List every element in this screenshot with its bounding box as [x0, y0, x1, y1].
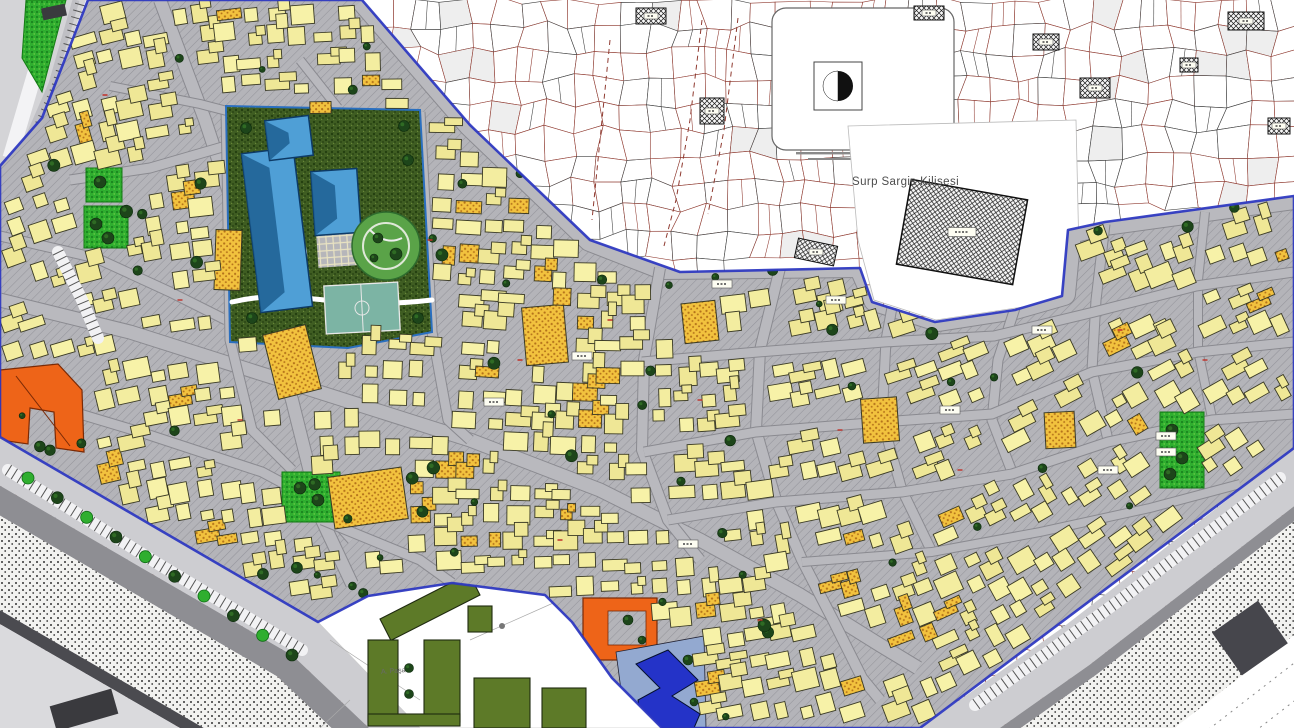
- urban-plan-map: Surp Sargis Kilisesi A. Paşa: [0, 0, 1294, 728]
- church-label: Surp Sargis Kilisesi: [852, 176, 959, 188]
- map-canvas: [0, 0, 1294, 728]
